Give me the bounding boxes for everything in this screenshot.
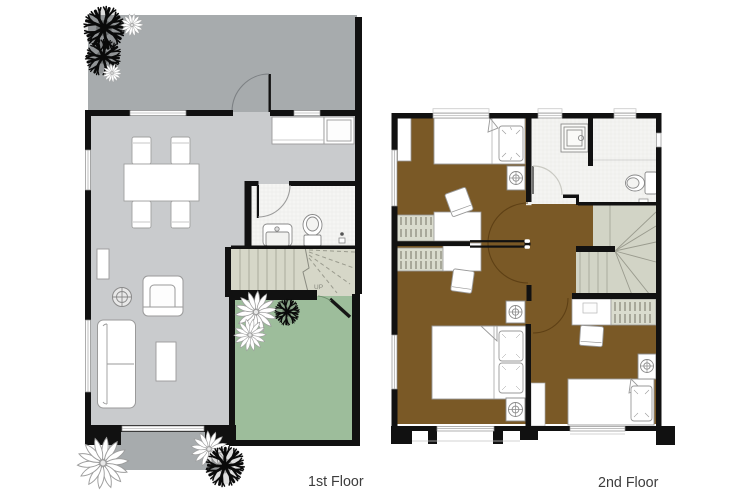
svg-text:UP: UP	[314, 284, 323, 291]
svg-text:1st Floor: 1st Floor	[308, 474, 364, 490]
svg-text:2nd Floor: 2nd Floor	[598, 475, 659, 491]
